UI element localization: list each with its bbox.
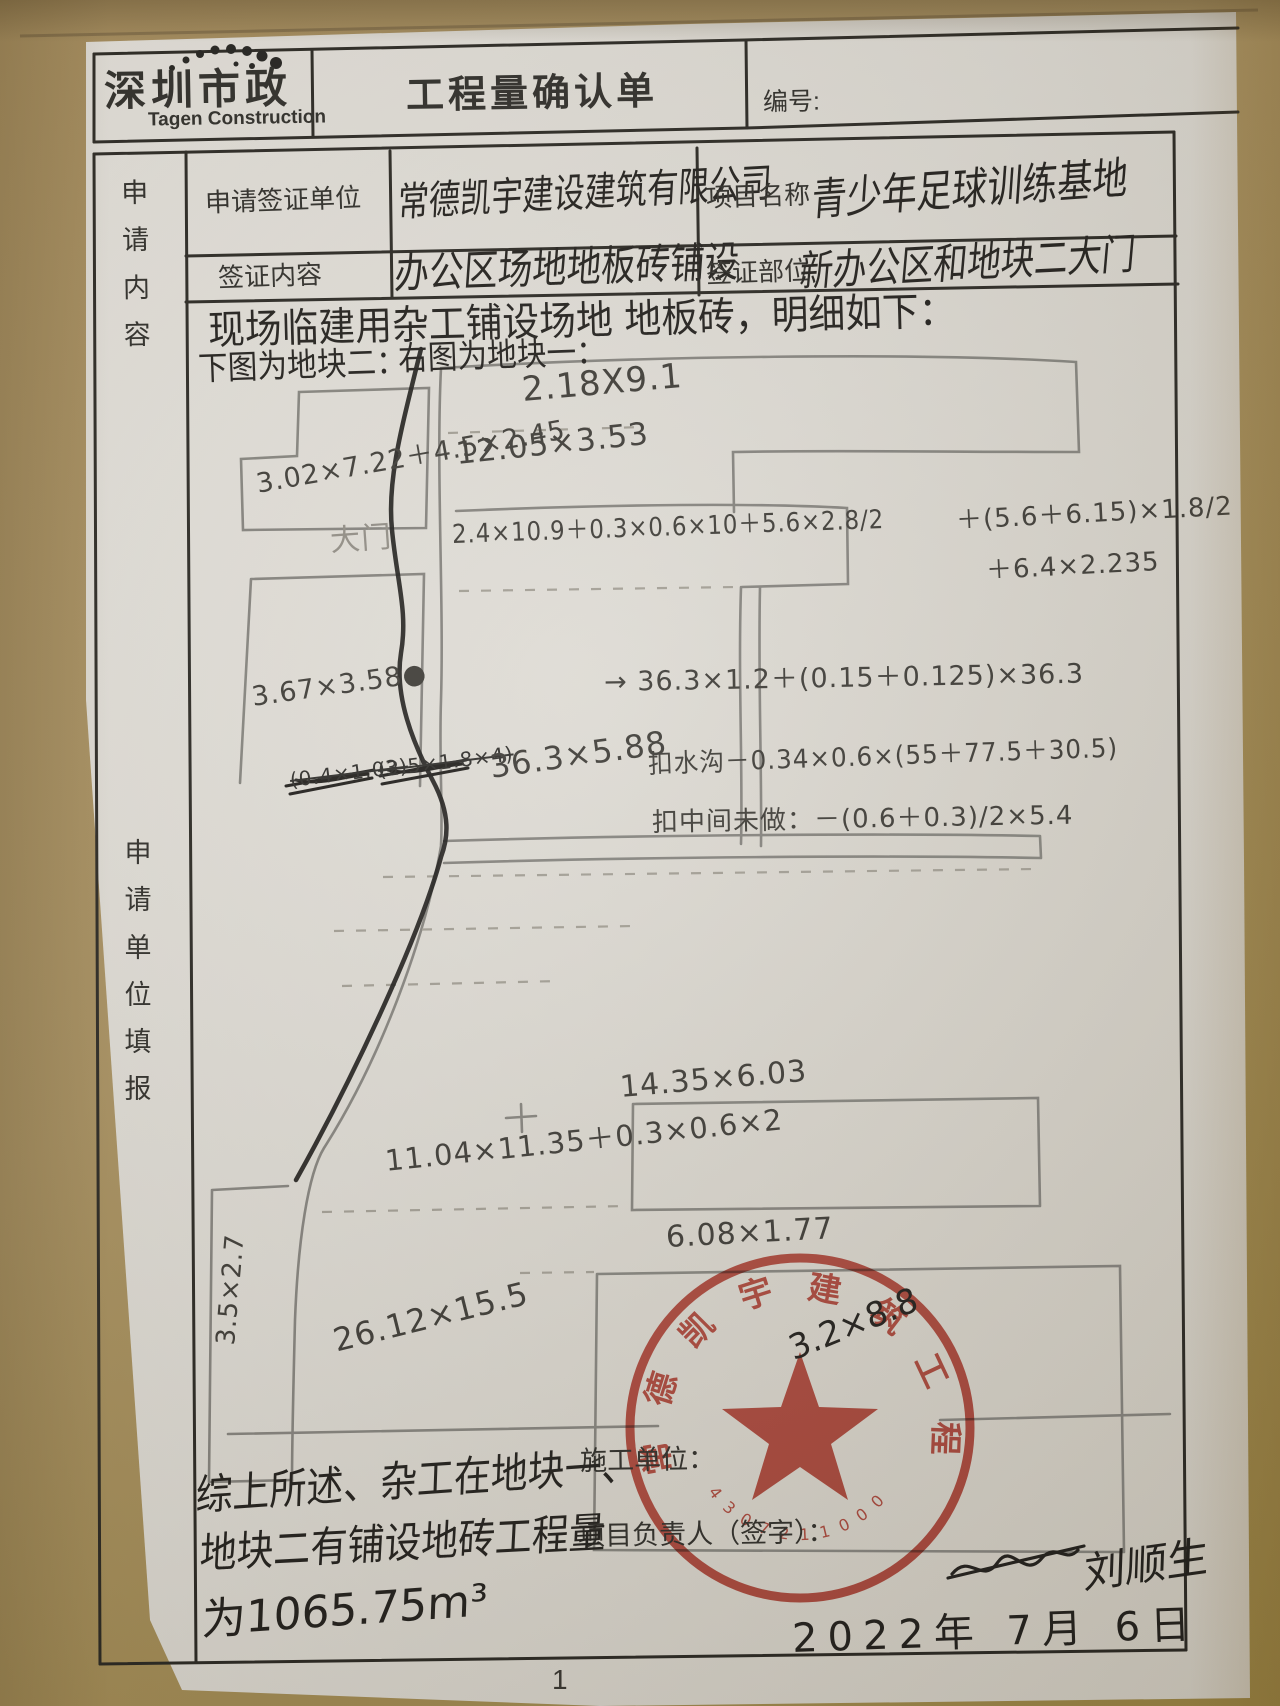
- page-number: 1: [552, 1664, 568, 1696]
- logo-text-en: Tagen Construction: [148, 106, 326, 131]
- measurement-label: 扣中间未做：－(0.6＋0.3)/2×5.4: [652, 795, 1074, 839]
- sub-caption-left: 下图为地块二：: [197, 335, 406, 390]
- photo-of-document: { "header": { "logo_cn": "深圳市政", "logo_e…: [0, 0, 1280, 1706]
- left-label-apply-content: 申请内容: [106, 169, 171, 359]
- measurement-label: 大门: [328, 512, 393, 560]
- form-title: 工程量确认单: [352, 59, 713, 120]
- number-label: 编号:: [763, 82, 821, 119]
- row1-label: 申请签证单位: [204, 177, 361, 219]
- left-label-applicant-fill: 申请单位填报: [110, 830, 172, 1114]
- row1-label2: 项目名称: [705, 174, 810, 215]
- project-manager-label: 项目负责人（签字）：: [578, 1510, 835, 1553]
- row2-label: 签证内容: [217, 254, 322, 295]
